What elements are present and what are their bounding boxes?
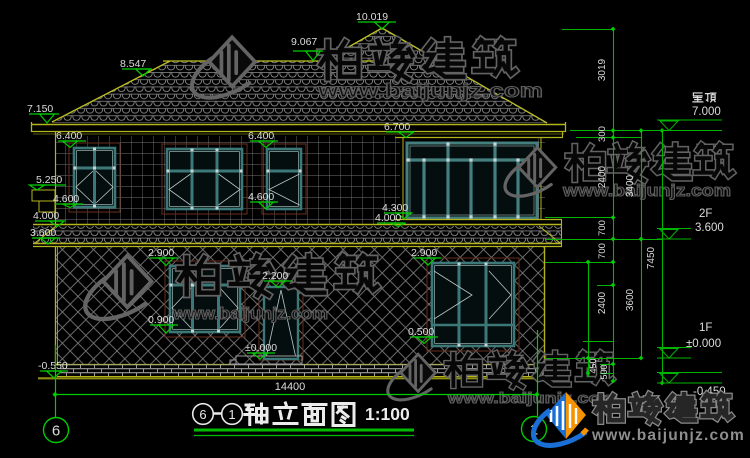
- svg-text:10.019: 10.019: [356, 11, 388, 23]
- svg-text:4.000: 4.000: [375, 212, 401, 224]
- svg-text:1: 1: [228, 407, 235, 422]
- svg-text:6.400: 6.400: [56, 130, 82, 142]
- svg-text:2.900: 2.900: [411, 247, 437, 259]
- svg-text:2400: 2400: [597, 165, 608, 188]
- svg-text:±0.000: ±0.000: [686, 338, 721, 350]
- svg-text:1:100: 1:100: [365, 404, 410, 424]
- svg-text:0.900: 0.900: [148, 314, 174, 326]
- svg-text:www.baijunjz.com: www.baijunjz.com: [562, 181, 731, 200]
- svg-text:www.baijunjz.com: www.baijunjz.com: [317, 81, 543, 102]
- svg-text:3600: 3600: [625, 288, 636, 311]
- svg-text:700: 700: [597, 220, 608, 236]
- svg-text:8.547: 8.547: [120, 58, 146, 70]
- svg-text:3.600: 3.600: [695, 222, 724, 234]
- svg-text:4.600: 4.600: [53, 193, 79, 205]
- svg-text:7450: 7450: [646, 246, 657, 269]
- svg-text:3.600: 3.600: [30, 227, 56, 239]
- svg-text:2.200: 2.200: [262, 270, 288, 282]
- svg-text:500: 500: [599, 364, 609, 379]
- svg-text:3019: 3019: [597, 58, 608, 81]
- svg-text:2.900: 2.900: [148, 247, 174, 259]
- svg-text:4.600: 4.600: [248, 191, 274, 203]
- svg-text:±0.000: ±0.000: [245, 342, 277, 354]
- svg-text:www.baijunjz.com: www.baijunjz.com: [591, 427, 745, 444]
- svg-text:9.067: 9.067: [291, 36, 317, 48]
- svg-text:6: 6: [199, 407, 206, 422]
- svg-text:0.500: 0.500: [408, 326, 434, 338]
- svg-text:2400: 2400: [597, 291, 608, 314]
- svg-text:6.700: 6.700: [384, 121, 410, 133]
- svg-text:5.250: 5.250: [36, 174, 62, 186]
- svg-text:450: 450: [588, 358, 598, 373]
- svg-text:2F: 2F: [699, 208, 712, 220]
- svg-text:4.000: 4.000: [33, 210, 59, 222]
- svg-text:7.000: 7.000: [692, 106, 721, 118]
- svg-text:300: 300: [597, 126, 608, 142]
- svg-text:6: 6: [52, 423, 60, 440]
- svg-text:14400: 14400: [275, 381, 306, 393]
- svg-text:www.baijunjz.com: www.baijunjz.com: [172, 304, 328, 323]
- svg-text:-0.550: -0.550: [38, 360, 68, 372]
- svg-text:3400: 3400: [625, 174, 636, 197]
- svg-text:7.150: 7.150: [27, 103, 53, 115]
- svg-text:6.400: 6.400: [248, 130, 274, 142]
- svg-text:700: 700: [597, 243, 608, 259]
- svg-text:1F: 1F: [699, 322, 712, 334]
